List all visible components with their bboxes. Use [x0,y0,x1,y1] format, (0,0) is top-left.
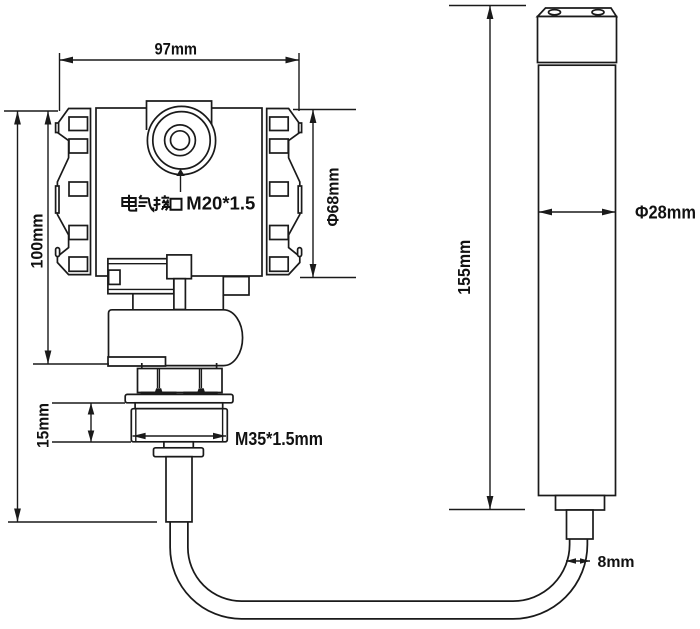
svg-text:97mm: 97mm [155,40,198,59]
svg-text:100mm: 100mm [28,214,47,269]
svg-text:M20*1.5: M20*1.5 [186,194,255,214]
svg-text:M35*1.5mm: M35*1.5mm [235,429,323,449]
svg-text:Φ28mm: Φ28mm [635,203,696,223]
svg-text:Φ68mm: Φ68mm [324,168,343,227]
svg-text:8mm: 8mm [598,554,635,571]
svg-text:155mm: 155mm [454,240,474,295]
svg-text:15mm: 15mm [33,403,52,448]
